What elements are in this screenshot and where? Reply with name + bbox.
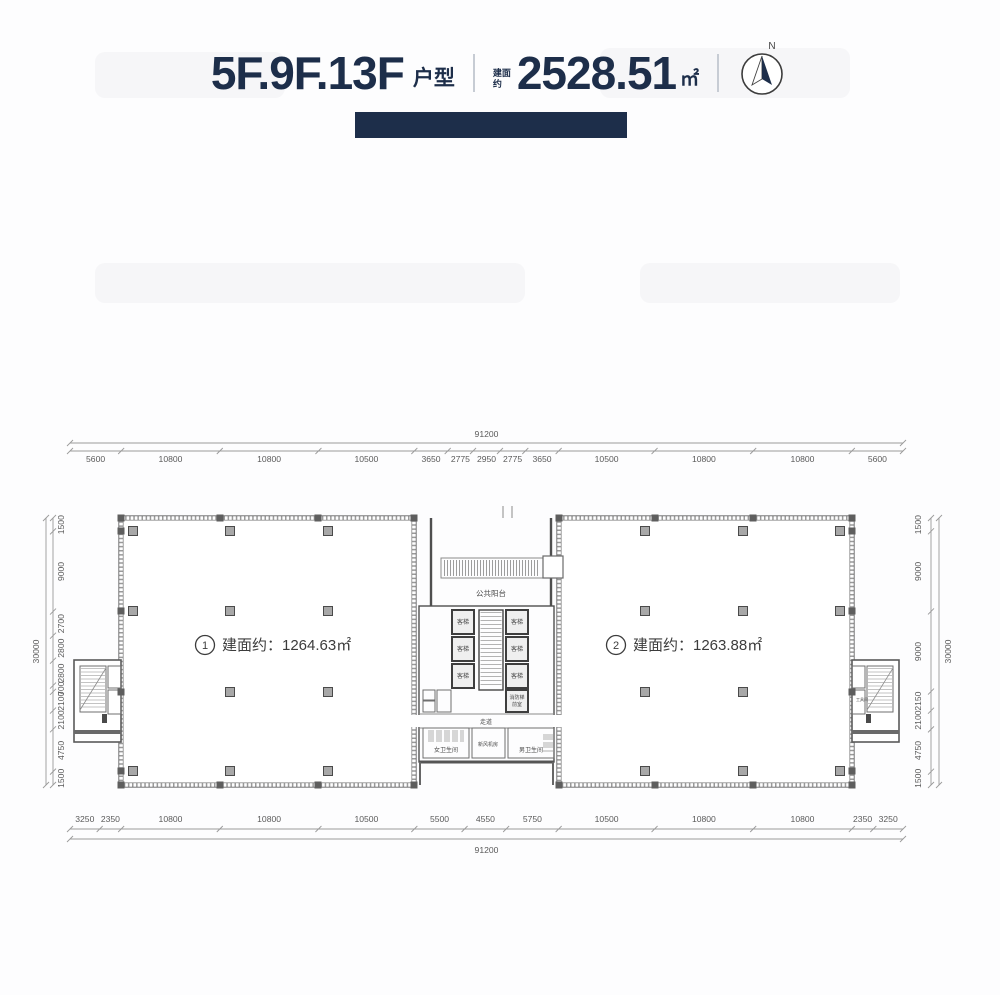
- column: [324, 767, 333, 776]
- dim-label: 30000: [31, 639, 41, 663]
- dim-label: 2775: [451, 454, 470, 464]
- column: [129, 767, 138, 776]
- dim-label: 10800: [159, 454, 183, 464]
- dim-label: 30000: [943, 639, 953, 663]
- dim-label: 4550: [476, 814, 495, 824]
- dim-label: 5500: [430, 814, 449, 824]
- fire-elevator-label: 前室: [512, 701, 522, 708]
- dim-label: 10800: [692, 454, 716, 464]
- dim-label: 10500: [595, 814, 619, 824]
- dim-label: 1500: [913, 515, 923, 534]
- column: [118, 782, 125, 789]
- dim-label: 9000: [913, 562, 923, 581]
- column: [750, 515, 757, 522]
- dim-label: 10800: [692, 814, 716, 824]
- elevator-label: 客梯: [457, 672, 469, 680]
- dim-label: 3650: [421, 454, 440, 464]
- dimension-bottom: 3250235010800108001050055004550575010500…: [67, 814, 906, 832]
- dimension-left-total: 30000: [31, 515, 49, 788]
- dim-label: 4750: [913, 741, 923, 760]
- dim-label: 10500: [595, 454, 619, 464]
- unit2-number: 2: [613, 640, 619, 652]
- dimension-left: 150090002700280028007002100210047501500: [50, 515, 66, 788]
- dim-label: 2100: [913, 710, 923, 729]
- dim-label: 2150: [913, 691, 923, 710]
- column: [836, 767, 845, 776]
- dim-label: 5600: [868, 454, 887, 464]
- dim-label: 1500: [56, 769, 66, 788]
- dim-label: 2775: [503, 454, 522, 464]
- dim-label: 5750: [523, 814, 542, 824]
- dim-label: 2100: [56, 710, 66, 729]
- column: [849, 782, 856, 789]
- tool-room-label: 工具间: [856, 696, 868, 702]
- elevator-label: 客梯: [457, 618, 469, 626]
- right-stair-block: 工具间: [852, 660, 899, 742]
- dim-label: 10500: [354, 814, 378, 824]
- column: [836, 607, 845, 616]
- dimension-top: 5600108001080010500365027752950277536501…: [67, 448, 906, 464]
- column: [641, 767, 650, 776]
- column: [217, 515, 224, 522]
- dim-label: 10800: [159, 814, 183, 824]
- column: [226, 607, 235, 616]
- dim-label: 3250: [75, 814, 94, 824]
- elevator-label: 客梯: [511, 618, 523, 626]
- dimension-right: 1500900090002150210047501500: [913, 515, 934, 788]
- dim-label: 3650: [532, 454, 551, 464]
- dim-label: 5600: [86, 454, 105, 464]
- column: [324, 688, 333, 697]
- column: [849, 608, 856, 615]
- column: [315, 782, 322, 789]
- column: [315, 515, 322, 522]
- mens-toilet-label: 男卫生间: [519, 746, 543, 754]
- left-stair-block: [74, 660, 121, 742]
- dim-label: 10800: [257, 814, 281, 824]
- fire-elevator-label: 消防梯: [509, 694, 524, 701]
- column: [411, 782, 418, 789]
- floor-plan-page: 5F.9F.13F 户型 建面约 2528.51 ㎡ N 91200 56001…: [0, 0, 1000, 995]
- dimension-right-total: 30000: [936, 515, 953, 788]
- dim-label: 2800: [56, 638, 66, 657]
- column: [739, 688, 748, 697]
- dim-label: 91200: [475, 845, 499, 855]
- column: [118, 528, 125, 535]
- dim-label: 3250: [879, 814, 898, 824]
- column: [217, 782, 224, 789]
- dim-label: 2350: [101, 814, 120, 824]
- column: [324, 607, 333, 616]
- womens-toilet-label: 女卫生间: [434, 746, 458, 754]
- dim-label: 10800: [791, 814, 815, 824]
- column: [849, 528, 856, 535]
- elevator-label: 客梯: [457, 645, 469, 653]
- column: [739, 527, 748, 536]
- column: [836, 527, 845, 536]
- dimension-bottom-total: 91200: [67, 836, 906, 855]
- unit2-area-text: 建面约：1263.88㎡: [633, 637, 762, 654]
- dim-label: 91200: [475, 429, 499, 439]
- dim-label: 2700: [56, 614, 66, 633]
- column: [652, 782, 659, 789]
- dim-label: 4750: [56, 741, 66, 760]
- dim-label: 1500: [913, 769, 923, 788]
- column: [652, 515, 659, 522]
- public-balcony: 公共阳台: [431, 506, 563, 606]
- column: [556, 782, 563, 789]
- dim-label: 9000: [913, 642, 923, 661]
- dim-label: 10800: [257, 454, 281, 464]
- column: [739, 767, 748, 776]
- floor-plan: 91200 5600108001080010500365027752950277…: [0, 0, 1000, 995]
- column: [226, 767, 235, 776]
- dim-label: 10800: [791, 454, 815, 464]
- column: [129, 527, 138, 536]
- column: [129, 607, 138, 616]
- column: [739, 607, 748, 616]
- fresh-air-room-label: 新风机房: [478, 741, 498, 748]
- dim-label: 2950: [477, 454, 496, 464]
- column: [226, 688, 235, 697]
- dim-label: 2800: [56, 663, 66, 682]
- column: [118, 768, 125, 775]
- dim-label: 1500: [56, 515, 66, 534]
- column: [750, 782, 757, 789]
- column: [849, 768, 856, 775]
- column: [641, 688, 650, 697]
- dim-label: 9000: [56, 562, 66, 581]
- column: [556, 515, 563, 522]
- unit1-area-text: 建面约：1264.63㎡: [222, 637, 351, 654]
- dim-label: 2350: [853, 814, 872, 824]
- column: [849, 689, 856, 696]
- column: [118, 515, 125, 522]
- column: [324, 527, 333, 536]
- column: [118, 689, 125, 696]
- balcony-label: 公共阳台: [476, 588, 506, 598]
- dim-label: 2100: [56, 691, 66, 710]
- column: [411, 515, 418, 522]
- elevator-label: 客梯: [511, 672, 523, 680]
- corridor-label: 走道: [480, 718, 492, 726]
- dim-label: 10500: [354, 454, 378, 464]
- service-core: 客梯 客梯 客梯 客梯 客梯 客梯 消防梯 前室 走道: [410, 606, 563, 785]
- dimension-top-total: 91200: [67, 429, 906, 446]
- column: [849, 515, 856, 522]
- unit1-number: 1: [202, 640, 208, 652]
- column: [226, 527, 235, 536]
- column: [641, 527, 650, 536]
- column: [118, 608, 125, 615]
- elevator-label: 客梯: [511, 645, 523, 653]
- column: [641, 607, 650, 616]
